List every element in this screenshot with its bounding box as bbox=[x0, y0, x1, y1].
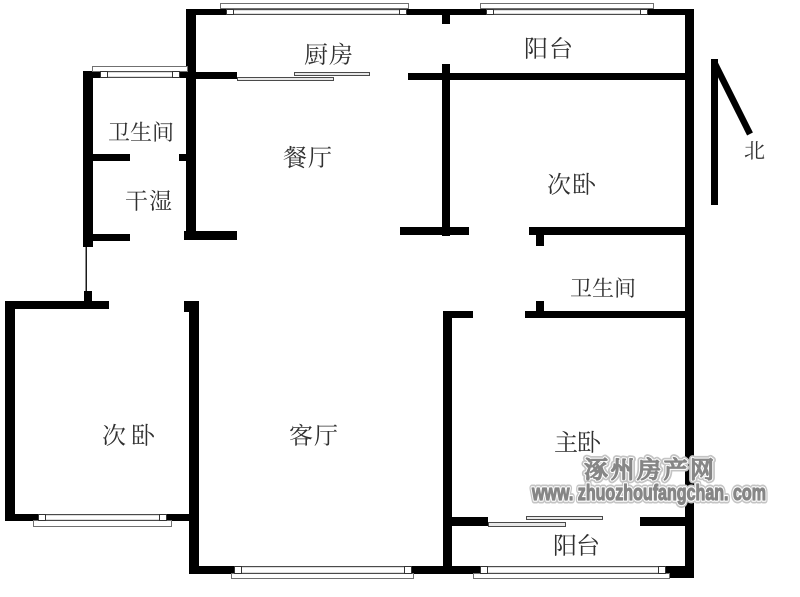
svg-text:www. zhuozhoufangchan. com: www. zhuozhoufangchan. com bbox=[531, 480, 766, 505]
